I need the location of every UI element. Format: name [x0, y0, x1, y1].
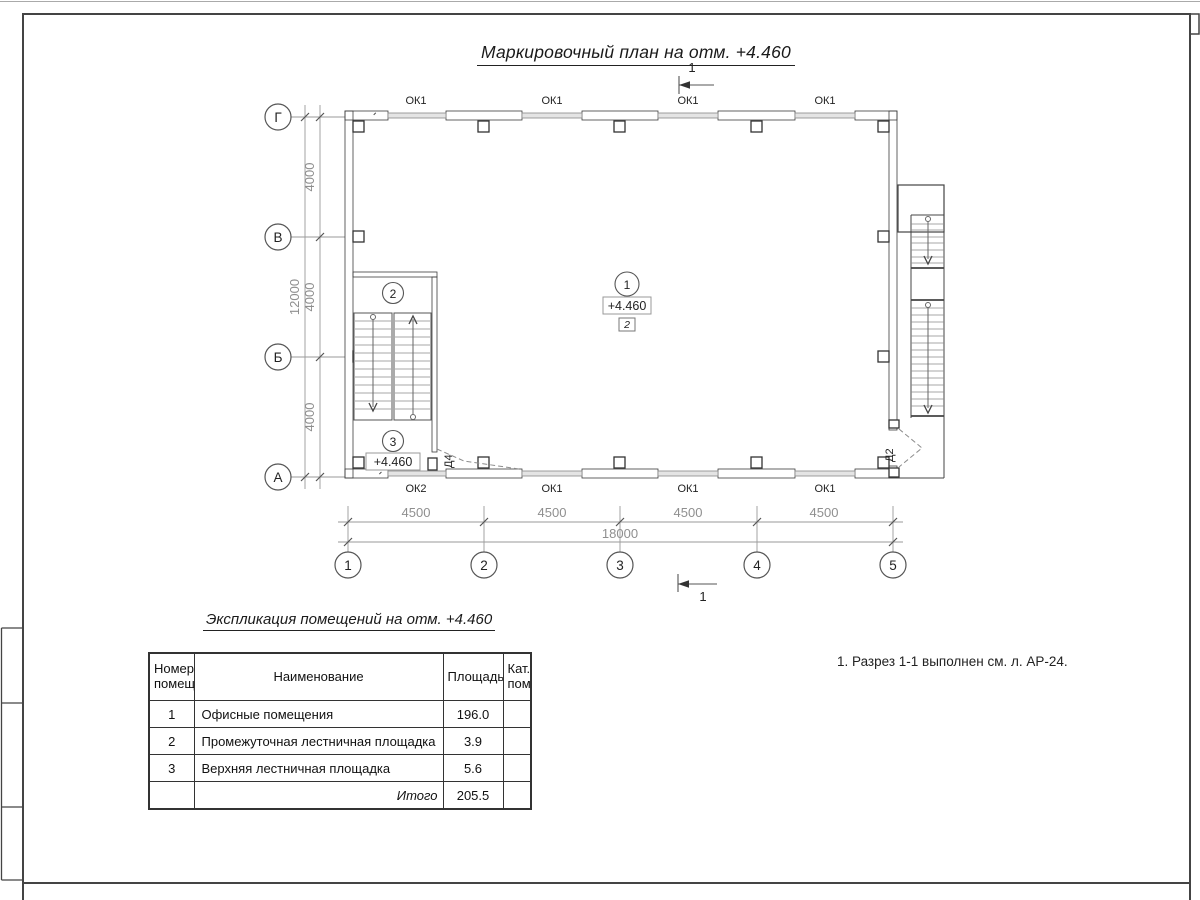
total-empty-cell [149, 782, 194, 810]
window-label: ОК1 [814, 483, 835, 495]
column [614, 121, 625, 132]
room-area: 5.6 [443, 755, 503, 782]
section-note: 1. Разрез 1-1 выполнен см. л. АР-24. [837, 654, 1068, 669]
stair-enclosure-wall-top [353, 272, 437, 277]
frame-side-strips [2, 628, 24, 880]
door-jamb-d4 [428, 458, 437, 470]
header-room-name: Наименование [194, 653, 443, 701]
axis-label-2: 2 [480, 558, 488, 573]
room-category [503, 701, 531, 728]
plan-title: Маркировочный план на отм. +4.460 [477, 42, 795, 66]
column [353, 457, 364, 468]
wall-bottom-pier [446, 469, 522, 478]
frame-corner-box [1190, 14, 1199, 34]
stair-bottom-landing [897, 418, 944, 478]
column [878, 351, 889, 362]
window-label: ОК1 [677, 483, 698, 495]
room3-elevation: +4.460 [374, 455, 413, 469]
room-area: 3.9 [443, 728, 503, 755]
axis-label-5: 5 [889, 558, 897, 573]
window-label: ОК1 [405, 95, 426, 107]
axis-label-3: 3 [616, 558, 624, 573]
room3-number: 3 [390, 435, 397, 449]
drawing-sheet: Г В Б А 1 2 3 4 5 4000 4000 4000 12000 4… [0, 0, 1200, 900]
door-jamb-d2 [889, 420, 899, 428]
total-category-cell [503, 782, 531, 810]
door-swings [437, 429, 922, 469]
room-schedule-table: Номер помещ. Наименование Площадь Кат. п… [148, 652, 532, 810]
dim-4500-2: 4500 [538, 505, 567, 520]
axis-label-v: В [273, 230, 282, 245]
room1-number: 1 [624, 278, 631, 292]
wall-bottom-pier [718, 469, 795, 478]
stair-enclosure-wall-right [432, 277, 437, 452]
dim-4500-4: 4500 [810, 505, 839, 520]
header-area: Площадь [443, 653, 503, 701]
door-label-d4: Д4 [443, 454, 455, 468]
room-name: Верхняя лестничная площадка [194, 755, 443, 782]
axis-bubbles-cols: 1 2 3 4 5 [335, 552, 906, 578]
column [353, 231, 364, 242]
window-ok1 [522, 471, 582, 476]
header-room-number: Номер помещ. [149, 653, 194, 701]
window-ok1 [522, 113, 582, 118]
dim-18000: 18000 [602, 526, 638, 541]
header-category: Кат. пом. [503, 653, 531, 701]
section-arrow-bottom [678, 580, 689, 588]
window-label: ОК1 [541, 483, 562, 495]
window-ok2 [388, 471, 446, 476]
total-label: Итого [194, 782, 443, 810]
room-category [503, 728, 531, 755]
window-label: ОК1 [677, 95, 698, 107]
wall-bottom-pier [582, 469, 658, 478]
dim-4000-1: 4000 [302, 163, 317, 192]
stair-direction-start [926, 303, 931, 308]
wall-left [345, 111, 353, 478]
column [751, 121, 762, 132]
dim-12000: 12000 [287, 279, 302, 315]
column [878, 231, 889, 242]
room-name: Промежуточная лестничная площадка [194, 728, 443, 755]
window-ok1 [658, 113, 718, 118]
wall-top-pier [718, 111, 795, 120]
window-ok1 [388, 113, 446, 118]
dim-4500-3: 4500 [674, 505, 703, 520]
column [614, 457, 625, 468]
window-label: ОК1 [814, 95, 835, 107]
column [478, 121, 489, 132]
schedule-row: 2 Промежуточная лестничная площадка 3.9 [149, 728, 531, 755]
column [878, 121, 889, 132]
room1-finish-mark: 2 [623, 319, 630, 331]
axis-label-4: 4 [753, 558, 761, 573]
room2-number: 2 [390, 287, 397, 301]
section-arrow-top [679, 81, 690, 89]
axis-label-b: Б [274, 350, 283, 365]
schedule-title: Экспликация помещений на отм. +4.460 [203, 611, 495, 631]
column [751, 457, 762, 468]
schedule-total-row: Итого 205.5 [149, 782, 531, 810]
wall-top-pier [446, 111, 522, 120]
column [353, 121, 364, 132]
room1-elevation: +4.460 [608, 299, 647, 313]
opening-labels: ОК1 ОК1 ОК1 ОК1 ОК2 ОК1 ОК1 ОК1 Д4 Д2 [405, 95, 896, 495]
dim-4000-3: 4000 [302, 403, 317, 432]
axis-label-g: Г [274, 110, 282, 125]
window-label: ОК1 [541, 95, 562, 107]
schedule-row: 1 Офисные помещения 196.0 [149, 701, 531, 728]
stair-right [897, 185, 944, 478]
window-ok1 [795, 113, 855, 118]
window-ok1 [795, 471, 855, 476]
room-category [503, 755, 531, 782]
section-label-bottom: 1 [699, 589, 706, 604]
window-label: ОК2 [405, 483, 426, 495]
axis-label-a: А [273, 470, 282, 485]
column [478, 457, 489, 468]
schedule-header-row: Номер помещ. Наименование Площадь Кат. п… [149, 653, 531, 701]
wall-right-upper [889, 111, 897, 430]
schedule-row: 3 Верхняя лестничная площадка 5.6 [149, 755, 531, 782]
room-name: Офисные помещения [194, 701, 443, 728]
total-area: 205.5 [443, 782, 503, 810]
room-area: 196.0 [443, 701, 503, 728]
dim-4000-2: 4000 [302, 283, 317, 312]
window-ok1 [658, 471, 718, 476]
dim-4500-1: 4500 [402, 505, 431, 520]
door-label-d2: Д2 [884, 448, 896, 462]
door-jamb-d2 [889, 468, 899, 477]
door-swing-d2 [899, 429, 922, 467]
stair-left [354, 313, 431, 420]
stair-top-landing [898, 185, 944, 232]
room-number: 1 [149, 701, 194, 728]
room-number: 2 [149, 728, 194, 755]
wall-top-pier [582, 111, 658, 120]
room-number: 3 [149, 755, 194, 782]
axis-label-1: 1 [344, 558, 352, 573]
